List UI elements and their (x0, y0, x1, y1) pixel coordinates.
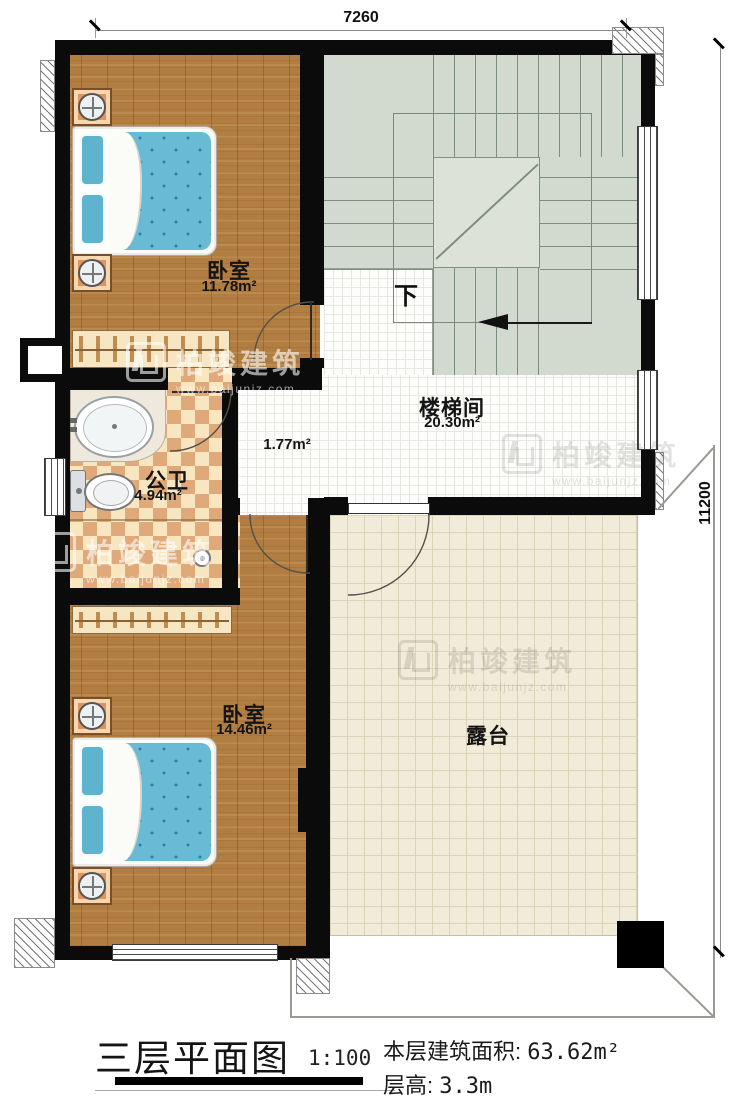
floor-height-value: 3.3m (439, 1074, 492, 1099)
watermark-brand: 柏竣建筑 (448, 640, 576, 680)
floor-height-row: 层高: 3.3m (383, 1068, 492, 1100)
nightstand (72, 88, 112, 126)
door-arc-bathroom (170, 390, 234, 454)
flue-duct (20, 338, 70, 382)
drawing-scale: 1:100 (308, 1046, 371, 1070)
watermark-brand: 柏竣建筑 (86, 532, 214, 572)
lamp-icon (78, 702, 106, 730)
stair-arrow-shaft (506, 322, 592, 324)
nightstand (72, 867, 112, 905)
lamp-icon (78, 93, 106, 121)
hatch-left-top (40, 60, 55, 132)
hatch-top-right-corner (612, 27, 664, 54)
floor-plan: 下 (0, 0, 750, 1114)
area-label-corridor: 1.77m² (263, 436, 311, 453)
terrace-corner-post (617, 921, 664, 968)
area-label-bedroom1: 11.78m² (201, 278, 256, 295)
lamp-icon (78, 872, 106, 900)
wardrobe-bedroom2 (72, 606, 232, 634)
shower-partition (70, 519, 222, 521)
wardrobe-rail (75, 620, 229, 622)
floor-area-label: 本层建筑面积: (383, 1039, 521, 1064)
hatch-bottom-mid (296, 958, 330, 994)
terrace-door-leaf (348, 503, 430, 514)
wall-bathroom-bottom (55, 588, 240, 605)
hatch-right-upper (655, 54, 664, 86)
stair-inner-railing (393, 113, 592, 323)
wall-top (55, 40, 662, 55)
wall-bedroom1-right (300, 55, 324, 305)
wall-stairhall-bottom-a (324, 497, 348, 515)
watermark: 柏竣建筑 www.baijunjz.com (398, 640, 576, 694)
pillow (80, 745, 105, 797)
basin-drain (112, 424, 117, 429)
toilet-bowl-inner (93, 480, 129, 506)
terrace-railing-bottom (290, 1016, 715, 1018)
watermark-brand: 柏竣建筑 (176, 342, 304, 382)
watermark-brand: 柏竣建筑 (552, 434, 680, 474)
area-label-stairwell: 20.30m² (424, 414, 480, 431)
nightstand (72, 254, 112, 292)
title-underline-thin (95, 1090, 395, 1091)
wall-stairhall-bottom-b (428, 497, 655, 515)
nightstand (72, 697, 112, 735)
hatch-bottom-left (14, 918, 55, 968)
pillow (80, 193, 105, 245)
window-stair-right-upper (637, 126, 658, 300)
watermark-logo-icon (502, 434, 542, 474)
pillow (80, 134, 105, 186)
watermark: 柏竣建筑 www.baijunjz.com (36, 532, 214, 586)
dim-tick (713, 37, 725, 49)
stair-down-label: 下 (394, 276, 418, 311)
title-underline-thick (115, 1077, 363, 1085)
watermark-site: www.baijunjz.com (448, 680, 576, 694)
door-arc-bedroom2 (246, 514, 310, 578)
watermark-logo-icon (36, 532, 76, 572)
watermark-site: www.baijunjz.com (86, 572, 214, 586)
wall-bedroom2-right (306, 515, 330, 946)
dim-right-label: 11200 (697, 468, 715, 538)
bed-bedroom1 (72, 126, 217, 256)
room-label-terrace: 露台 (466, 720, 510, 750)
stair-arrow-icon (478, 314, 508, 330)
floor-height-label: 层高: (383, 1073, 433, 1098)
watermark: 柏竣建筑 www.baijunjz.com (126, 342, 304, 396)
watermark-site: www.baijunjz.com (176, 382, 304, 396)
dim-line-right (720, 47, 721, 958)
window-bathroom-left (44, 458, 66, 516)
floor-area-value: 63.62m² (527, 1040, 620, 1065)
window-bedroom2-bottom (112, 944, 278, 961)
drawing-title: 三层平面图 (95, 1028, 290, 1082)
watermark: 柏竣建筑 www.baijunjz.com (502, 434, 680, 488)
terrace-railing-left (290, 958, 292, 1018)
watermark-logo-icon (398, 640, 438, 680)
lamp-icon (78, 259, 106, 287)
terrace-door-leaf-mark (298, 768, 330, 832)
toilet-flush-button (76, 488, 82, 494)
door-arc-terrace (348, 514, 432, 598)
pillow (80, 804, 105, 856)
terrace-railing-diagonal-corner (662, 966, 714, 1017)
dim-line-top (95, 30, 627, 31)
wall-corridor-bottom-a (222, 498, 240, 515)
dim-top-label: 7260 (331, 9, 391, 27)
floor-area-row: 本层建筑面积: 63.62m² (383, 1034, 620, 1066)
area-label-bathroom: 4.94m² (134, 487, 182, 504)
area-label-bedroom2: 14.46m² (216, 721, 272, 738)
watermark-logo-icon (126, 342, 166, 382)
bed-bedroom2 (72, 737, 217, 867)
watermark-site: www.baijunjz.com (552, 474, 680, 488)
